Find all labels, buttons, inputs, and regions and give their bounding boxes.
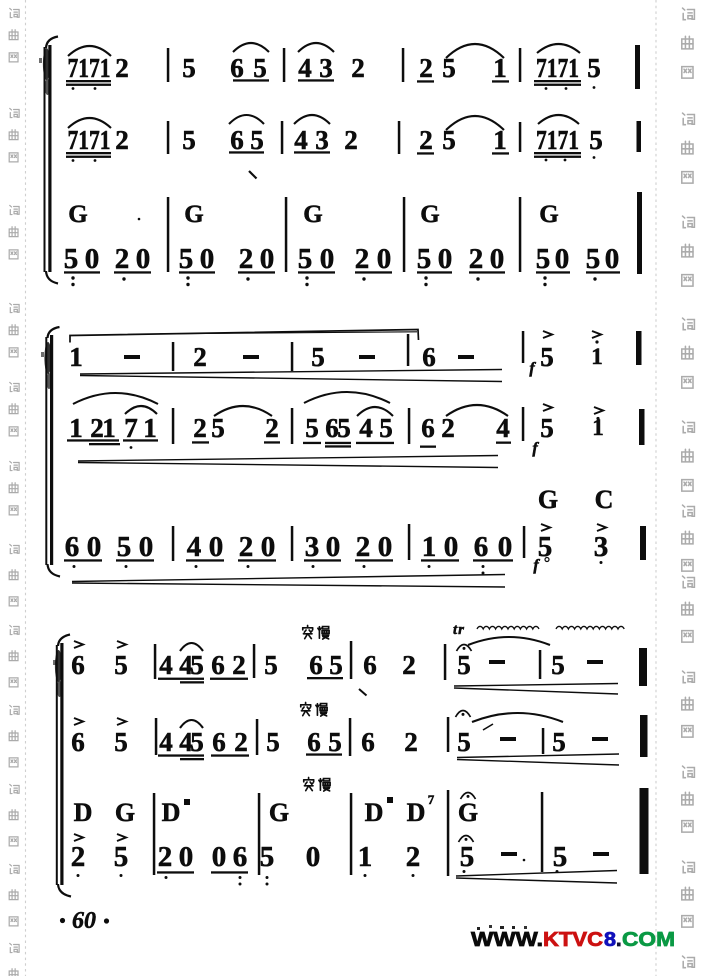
svg-text:4: 4 (159, 650, 173, 680)
svg-text:5: 5 (305, 413, 319, 443)
svg-text:7171: 7171 (68, 53, 111, 83)
svg-text:1: 1 (422, 531, 437, 563)
svg-text:5: 5 (114, 727, 128, 757)
svg-text:5: 5 (442, 53, 456, 83)
svg-text:6: 6 (211, 650, 225, 680)
svg-text:5: 5 (266, 727, 280, 757)
svg-text:G: G (458, 798, 478, 827)
svg-text:3: 3 (305, 531, 320, 563)
svg-text:.: . (616, 929, 622, 951)
svg-text:6: 6 (421, 413, 435, 443)
svg-text:3: 3 (319, 53, 333, 83)
svg-text:2: 2 (158, 841, 173, 873)
svg-text:5: 5 (417, 243, 432, 275)
svg-text:2: 2 (404, 727, 418, 757)
svg-text:2: 2 (115, 53, 129, 83)
svg-text:G: G (269, 798, 289, 827)
svg-text:6: 6 (233, 841, 248, 873)
svg-text:5: 5 (586, 243, 601, 275)
svg-text:5: 5 (114, 841, 129, 873)
svg-text:0: 0 (87, 531, 102, 563)
svg-text:1: 1 (143, 413, 157, 443)
svg-text:0: 0 (605, 243, 620, 275)
svg-text:2: 2 (419, 125, 433, 155)
svg-text:0: 0 (326, 531, 341, 563)
svg-text:2: 2 (115, 243, 130, 275)
svg-text:2: 2 (419, 53, 433, 83)
svg-text:0: 0 (444, 531, 459, 563)
svg-text:4: 4 (359, 413, 373, 443)
svg-text:0: 0 (85, 243, 100, 275)
svg-text:2: 2 (232, 650, 246, 680)
svg-text:4: 4 (298, 53, 312, 83)
svg-text:WWW.: WWW. (471, 929, 543, 951)
svg-text:D: D (74, 798, 93, 827)
svg-text:5: 5 (329, 650, 343, 680)
svg-text:0: 0 (490, 243, 505, 275)
svg-text:G: G (68, 201, 87, 228)
svg-text:2: 2 (193, 413, 207, 443)
svg-text:6: 6 (422, 342, 436, 372)
svg-text:5: 5 (117, 531, 132, 563)
svg-text:G: G (538, 485, 558, 514)
svg-text:1: 1 (358, 841, 373, 873)
svg-text:5: 5 (298, 243, 313, 275)
svg-text:7: 7 (428, 792, 435, 807)
svg-text:5: 5 (190, 650, 204, 680)
svg-text:6: 6 (71, 650, 85, 680)
svg-text:5: 5 (264, 650, 278, 680)
svg-text:0: 0 (555, 243, 570, 275)
svg-text:5: 5 (460, 841, 475, 873)
svg-text:COM: COM (622, 929, 675, 951)
svg-text:6: 6 (65, 531, 80, 563)
svg-text:0: 0 (378, 531, 393, 563)
svg-text:G: G (184, 201, 203, 228)
svg-text:0: 0 (260, 243, 275, 275)
svg-text:2: 2 (239, 243, 254, 275)
svg-text:4: 4 (294, 125, 308, 155)
svg-text:5: 5 (260, 841, 275, 873)
svg-text:5: 5 (589, 125, 603, 155)
svg-text:f: f (529, 360, 536, 377)
svg-text:2: 2 (193, 342, 207, 372)
svg-text:5: 5 (587, 53, 601, 83)
svg-text:2: 2 (406, 841, 421, 873)
svg-text:2: 2 (469, 243, 484, 275)
svg-text:5: 5 (551, 650, 565, 680)
svg-text:0: 0 (438, 243, 453, 275)
svg-text:5: 5 (536, 243, 551, 275)
svg-text:5: 5 (64, 243, 79, 275)
svg-text:0: 0 (179, 841, 194, 873)
svg-text:5: 5 (250, 125, 264, 155)
svg-text:5: 5 (190, 727, 204, 757)
svg-text:2: 2 (71, 841, 86, 873)
svg-text:60: 60 (72, 908, 96, 934)
svg-text:7: 7 (124, 413, 138, 443)
svg-text:5: 5 (337, 413, 351, 443)
svg-text:KTVC: KTVC (543, 929, 603, 951)
svg-text:G: G (115, 798, 135, 827)
svg-text:0: 0 (306, 841, 321, 873)
svg-text:2: 2 (355, 243, 370, 275)
svg-text:2: 2 (239, 531, 254, 563)
svg-text:0: 0 (377, 243, 392, 275)
svg-text:5: 5 (179, 243, 194, 275)
svg-text:f: f (532, 440, 539, 457)
svg-text:1: 1 (591, 344, 603, 369)
svg-text:D: D (365, 798, 384, 827)
svg-text:6: 6 (71, 727, 85, 757)
svg-text:G: G (420, 201, 439, 228)
svg-text:D: D (162, 798, 181, 827)
svg-text:2: 2 (344, 125, 358, 155)
svg-text:5: 5 (253, 53, 267, 83)
svg-text:1: 1 (493, 53, 507, 83)
svg-text:0: 0 (209, 531, 224, 563)
svg-text:5: 5 (553, 841, 568, 873)
svg-text:7171: 7171 (536, 125, 579, 155)
svg-text:5: 5 (540, 413, 554, 443)
svg-text:2: 2 (351, 53, 365, 83)
svg-text:5: 5 (442, 125, 456, 155)
svg-text:D: D (407, 798, 426, 827)
svg-text:6: 6 (230, 125, 244, 155)
svg-text:1: 1 (592, 415, 604, 440)
svg-text:5: 5 (328, 727, 342, 757)
svg-text:0: 0 (212, 841, 227, 873)
svg-text:2: 2 (402, 650, 416, 680)
svg-text:3: 3 (315, 125, 329, 155)
svg-text:C: C (595, 485, 614, 514)
svg-text:4: 4 (159, 727, 173, 757)
svg-text:6: 6 (474, 531, 489, 563)
svg-text:5: 5 (182, 125, 196, 155)
svg-text:2: 2 (115, 125, 129, 155)
svg-text:8: 8 (604, 929, 616, 951)
svg-text:4: 4 (187, 531, 202, 563)
svg-text:2: 2 (234, 727, 248, 757)
svg-text:2: 2 (265, 413, 279, 443)
svg-text:5: 5 (182, 53, 196, 83)
svg-text:G: G (539, 201, 558, 228)
svg-text:5: 5 (311, 342, 325, 372)
svg-text:0: 0 (498, 531, 513, 563)
svg-text:G: G (303, 201, 322, 228)
svg-text:6: 6 (230, 53, 244, 83)
svg-text:5: 5 (540, 342, 554, 372)
svg-text:7171: 7171 (68, 125, 111, 155)
svg-text:6: 6 (361, 727, 375, 757)
svg-text:0: 0 (139, 531, 154, 563)
svg-text:6: 6 (363, 650, 377, 680)
svg-text:0: 0 (136, 243, 151, 275)
svg-text:1: 1 (69, 413, 83, 443)
svg-text:1: 1 (493, 125, 507, 155)
svg-text:0: 0 (320, 243, 335, 275)
svg-text:5: 5 (379, 413, 393, 443)
svg-text:5: 5 (457, 650, 471, 680)
svg-text:1: 1 (102, 413, 116, 443)
svg-text:6: 6 (307, 727, 321, 757)
svg-text:5: 5 (552, 727, 566, 757)
svg-text:0: 0 (200, 243, 215, 275)
svg-text:5: 5 (457, 727, 471, 757)
svg-text:5: 5 (211, 413, 225, 443)
svg-text:3: 3 (594, 531, 609, 563)
svg-text:6: 6 (212, 727, 226, 757)
svg-text:4: 4 (496, 413, 510, 443)
svg-text:6: 6 (309, 650, 323, 680)
svg-text:1: 1 (69, 342, 83, 372)
svg-text:7171: 7171 (536, 53, 579, 83)
svg-text:5: 5 (114, 650, 128, 680)
svg-text:0: 0 (261, 531, 276, 563)
svg-text:tr: tr (453, 622, 465, 638)
svg-text:2: 2 (356, 531, 371, 563)
svg-text:2: 2 (441, 413, 455, 443)
